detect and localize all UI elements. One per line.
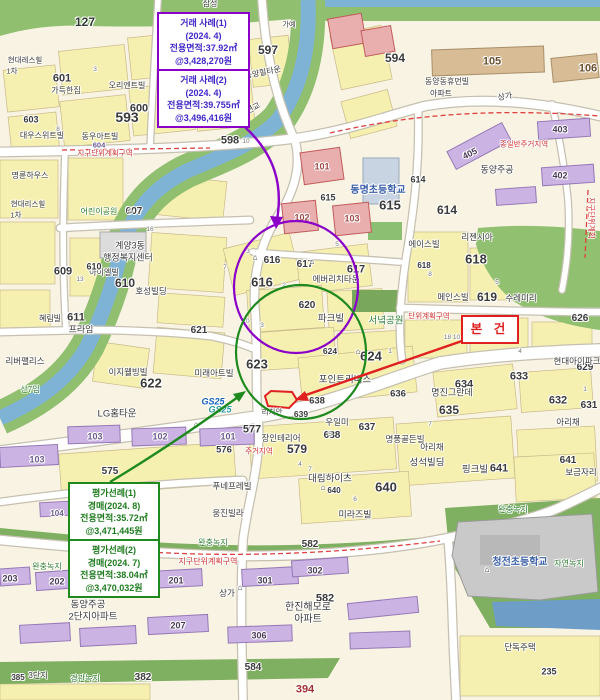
seonyeok-park [352,290,400,312]
map-view: 127삼성가예594597593598601가득한집오리엔트빌600603현대레… [0,0,600,700]
callout-line: 전용면적:37.92㎡ [160,42,247,55]
library-building [363,158,399,204]
callout-line: (2024. 4) [160,30,247,43]
sale-comparables-callout: 거래 사례(1) (2024. 4) 전용면적:37.92㎡ @3,428,27… [157,12,250,128]
appraisal-section-1: 평가선례(1) 경매(2024. 8) 전용면적:35.72㎡ @3,471,4… [70,484,158,539]
appraisal-precedents-callout: 평가선례(1) 경매(2024. 8) 전용면적:35.72㎡ @3,471,4… [68,482,160,598]
callout-line: 전용면적:39.755㎡ [160,99,247,112]
sale-section-1: 거래 사례(1) (2024. 4) 전용면적:37.92㎡ @3,428,27… [159,14,248,69]
callout-line: 거래 사례(1) [160,17,247,30]
callout-line: @3,470,032원 [71,582,157,595]
callout-line: (2024. 4) [160,87,247,100]
callout-line: @3,496,416원 [160,112,247,125]
community-center [100,232,146,258]
callout-line: 경매(2024. 8) [71,500,157,513]
callout-line: 평가선례(2) [71,544,157,557]
sale-section-2: 거래 사례(2) (2024. 4) 전용면적:39.755㎡ @3,496,4… [159,69,248,126]
subject-parcel-outline [265,391,297,408]
appraisal-section-2: 평가선례(2) 경매(2024. 7) 전용면적:38.04㎡ @3,470,0… [70,539,158,596]
callout-line: @3,471,445원 [71,525,157,538]
school-building [480,535,540,565]
callout-line: @3,428,270원 [160,55,247,68]
callout-line: 평가선례(1) [71,487,157,500]
callout-line: 전용면적:38.04㎡ [71,569,157,582]
schoolyard [368,222,402,240]
subject-property-callout: 본 건 [461,315,519,344]
callout-line: 경매(2024. 7) [71,557,157,570]
pond [492,599,600,630]
callout-line: 전용면적:35.72㎡ [71,512,157,525]
callout-line: 거래 사례(2) [160,74,247,87]
